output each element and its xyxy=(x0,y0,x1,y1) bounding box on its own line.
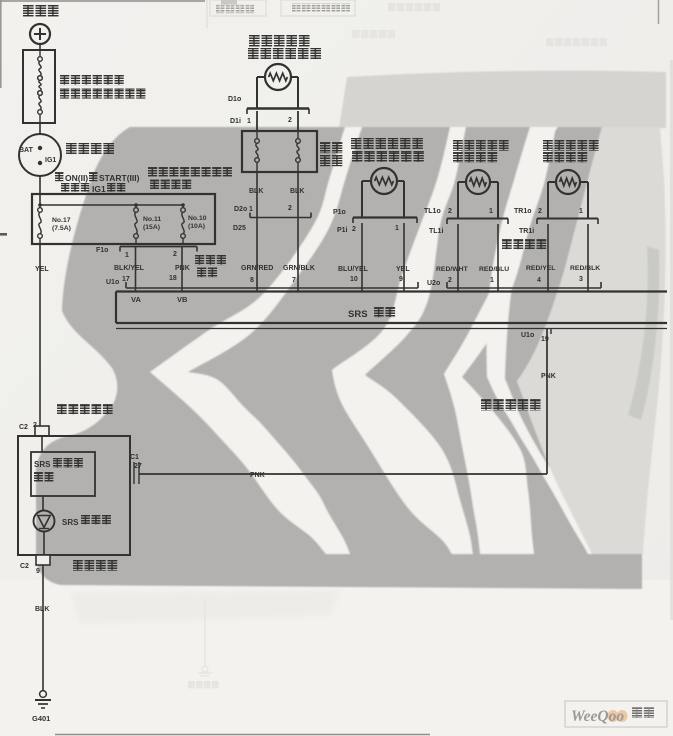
svg-text:RED/BLU: RED/BLU xyxy=(479,266,509,273)
svg-text:YEL: YEL xyxy=(396,266,410,273)
svg-text:9: 9 xyxy=(36,568,40,575)
svg-text:U1o: U1o xyxy=(106,279,119,286)
svg-text:D25: D25 xyxy=(233,225,246,232)
svg-text:BLK/YEL: BLK/YEL xyxy=(114,265,145,272)
svg-text:GRN/RED: GRN/RED xyxy=(241,265,273,272)
svg-text:2: 2 xyxy=(448,277,452,284)
svg-text:2: 2 xyxy=(352,226,356,233)
svg-text:C2: C2 xyxy=(19,424,28,431)
svg-text:F1o: F1o xyxy=(96,247,108,254)
svg-text:(15A): (15A) xyxy=(143,224,160,231)
svg-text:17: 17 xyxy=(122,276,130,283)
svg-text:GRN/BLK: GRN/BLK xyxy=(283,265,315,272)
svg-text:TL1i: TL1i xyxy=(429,228,443,235)
svg-text:U2o: U2o xyxy=(427,280,440,287)
svg-text:1: 1 xyxy=(490,277,494,284)
svg-text:(10A): (10A) xyxy=(188,223,205,230)
svg-text:1: 1 xyxy=(395,225,399,232)
svg-text:18: 18 xyxy=(169,275,177,282)
svg-text:2: 2 xyxy=(448,208,452,215)
svg-text:TL1o: TL1o xyxy=(424,208,441,215)
svg-text:PNK: PNK xyxy=(250,472,265,479)
svg-text:G401: G401 xyxy=(32,714,50,723)
svg-text:PNK: PNK xyxy=(541,373,556,380)
svg-text:No.10: No.10 xyxy=(188,215,207,222)
svg-text:No.17: No.17 xyxy=(52,217,71,224)
svg-text:BAT: BAT xyxy=(19,147,34,154)
svg-text:ON(II): ON(II) xyxy=(65,173,88,183)
svg-text:No.11: No.11 xyxy=(143,216,161,223)
svg-text:1: 1 xyxy=(247,118,251,125)
svg-text:BLU/YEL: BLU/YEL xyxy=(338,266,369,273)
svg-text:BLK: BLK xyxy=(35,606,49,613)
svg-text:1: 1 xyxy=(489,208,493,215)
svg-text:7: 7 xyxy=(292,277,296,284)
svg-text:P1o: P1o xyxy=(333,209,346,216)
svg-text:VB: VB xyxy=(177,295,188,304)
svg-text:(7.5A): (7.5A) xyxy=(52,225,71,232)
svg-text:BLK: BLK xyxy=(249,188,263,195)
svg-text:IG1: IG1 xyxy=(92,184,106,194)
svg-text:27: 27 xyxy=(134,463,142,470)
svg-text:RED/YEL: RED/YEL xyxy=(526,265,555,272)
svg-text:4: 4 xyxy=(537,277,541,284)
svg-text:WeeQoo: WeeQoo xyxy=(571,708,624,725)
svg-text:D1o: D1o xyxy=(228,96,241,103)
svg-text:1: 1 xyxy=(249,206,253,213)
svg-text:YEL: YEL xyxy=(35,266,49,273)
svg-text:PNK: PNK xyxy=(175,265,190,272)
svg-text:SRS: SRS xyxy=(348,309,368,320)
svg-text:2: 2 xyxy=(288,205,292,212)
svg-text:2: 2 xyxy=(173,251,177,258)
svg-text:C2: C2 xyxy=(20,563,29,570)
svg-text:1: 1 xyxy=(579,208,583,215)
svg-text:RED/WHT: RED/WHT xyxy=(436,266,469,273)
svg-text:2: 2 xyxy=(538,208,542,215)
svg-text:8: 8 xyxy=(250,277,254,284)
svg-text:IG1: IG1 xyxy=(45,157,56,164)
svg-text:VA: VA xyxy=(131,295,141,304)
svg-text:TR1i: TR1i xyxy=(519,228,534,235)
svg-text:START(III): START(III) xyxy=(99,173,140,183)
svg-text:RED/BLK: RED/BLK xyxy=(570,265,600,272)
svg-text:C1: C1 xyxy=(130,454,139,461)
svg-text:2: 2 xyxy=(288,117,292,124)
svg-text:10: 10 xyxy=(350,276,358,283)
svg-text:SRS: SRS xyxy=(34,460,51,469)
svg-text:BLK: BLK xyxy=(290,188,304,195)
svg-text:P1i: P1i xyxy=(337,227,348,234)
svg-text:9: 9 xyxy=(399,276,403,283)
svg-text:SRS: SRS xyxy=(62,518,79,527)
svg-text:D1i: D1i xyxy=(230,118,241,125)
svg-text:1: 1 xyxy=(125,252,129,259)
svg-text:D2o: D2o xyxy=(234,206,247,213)
svg-text:U1o: U1o xyxy=(521,332,534,339)
svg-text:TR1o: TR1o xyxy=(514,208,532,215)
svg-text:3: 3 xyxy=(579,276,583,283)
